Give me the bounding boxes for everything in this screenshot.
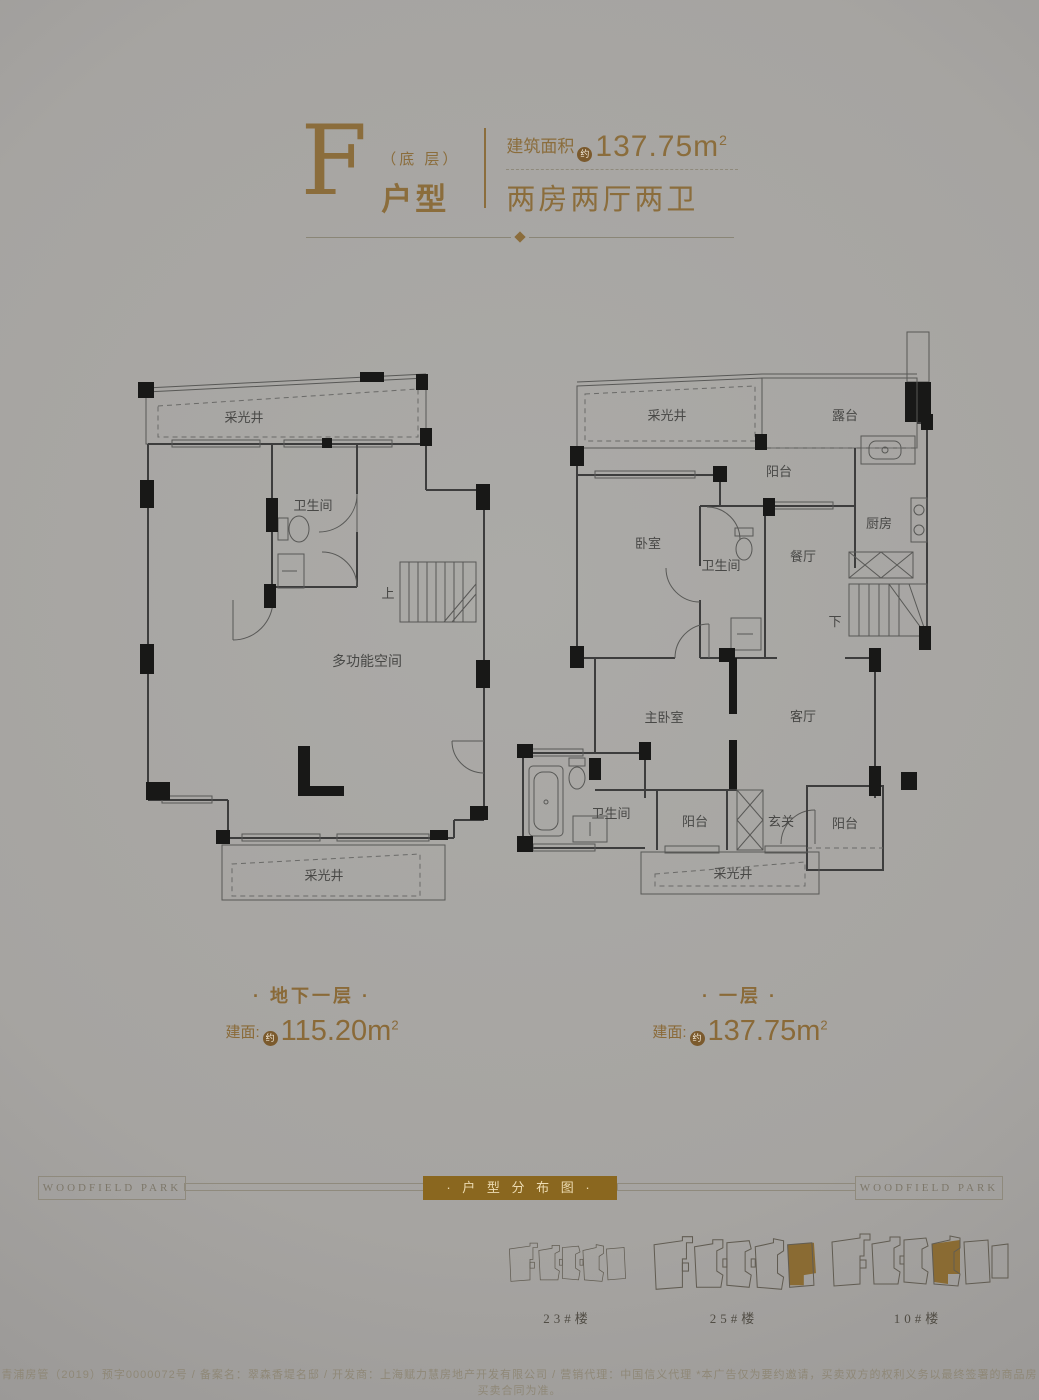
room-label-multi: 多功能空间 [332, 653, 402, 669]
header: F （底 层） 户型 建筑面积 约 137.75m2 两房两厅两卫 [0, 116, 1039, 219]
room-label-lightwell-bottom-f1: 采光井 [713, 866, 752, 881]
caption-basement-area-prefix: 建面: [225, 1021, 259, 1042]
banner-title: · 户 型 分 布 图 · [423, 1176, 617, 1200]
built-area-label: 建筑面积 [506, 132, 574, 157]
room-label-stairs-up: 上 [381, 586, 394, 601]
building-label-10: 10#楼 [826, 1308, 1010, 1327]
floorplan-first-floor: 采光井 露台 阳台 卧室 卫生间 餐厅 [515, 328, 935, 900]
layout-description: 两房两厅两卫 [506, 176, 738, 218]
built-area-sup: 2 [719, 132, 728, 148]
approx-badge: 约 [577, 147, 592, 162]
unit-type-label: 户型 [381, 174, 460, 219]
building-label-25: 25#楼 [648, 1308, 820, 1327]
banner-connector-left [184, 1183, 424, 1191]
approx-badge-basement: 约 [263, 1031, 278, 1046]
caption-basement-title: · 地下一层 · [132, 982, 492, 1008]
keyplan-building-23 [505, 1230, 630, 1296]
ornament-rule [306, 233, 734, 241]
floorplan-basement: 采光井 卫生间 [132, 362, 492, 907]
header-dashed-separator [506, 169, 738, 170]
highlighted-unit-10 [932, 1240, 960, 1284]
header-area-block: 建筑面积 约 137.75m2 两房两厅两卫 [506, 132, 738, 218]
caption-basement-area-sup: 2 [391, 1017, 398, 1032]
room-label-foyer: 玄关 [768, 814, 794, 829]
room-label-basement-bath: 卫生间 [293, 498, 332, 513]
approx-badge-first: 约 [690, 1031, 705, 1046]
legal-disclaimer: 青浦房管（2019）预字0000072号 / 备案名：翠森香堤名邸 / 开发商：… [0, 1366, 1039, 1398]
room-label-kitchen: 厨房 [866, 516, 892, 531]
keyplan-building-25 [648, 1228, 820, 1300]
unit-type-letter: F [301, 116, 368, 207]
unit-type-side: （底 层） 户型 [381, 116, 460, 219]
room-label-living: 客厅 [790, 709, 816, 724]
poster-page: F （底 层） 户型 建筑面积 约 137.75m2 两房两厅两卫 [0, 0, 1039, 1400]
caption-basement-area-number: 115.20m [281, 1015, 392, 1047]
diamond-ornament-icon [514, 231, 525, 242]
caption-first-floor: · 一层 · 建面: 约 137.75m2 [530, 982, 950, 1046]
room-label-balcony-b1: 阳台 [682, 814, 708, 829]
room-label-bath-mid: 卫生间 [701, 558, 740, 573]
room-label-bath-low: 卫生间 [591, 806, 630, 821]
brand-box-left: WOODFIELD PARK [38, 1176, 186, 1200]
caption-first-area-prefix: 建面: [652, 1021, 686, 1042]
caption-basement-area-value: 115.20m2 [281, 1017, 399, 1046]
room-label-master: 主卧室 [644, 710, 683, 725]
room-label-lightwell-top: 采光井 [224, 410, 263, 425]
caption-first-area-sup: 2 [820, 1017, 827, 1032]
caption-basement: · 地下一层 · 建面: 约 115.20m2 [132, 982, 492, 1046]
room-label-terrace: 露台 [832, 408, 858, 423]
keyplan-building-10 [826, 1226, 1010, 1302]
room-label-balcony-b2: 阳台 [832, 816, 858, 831]
room-label-lightwell-top-f1: 采光井 [647, 408, 686, 423]
room-label-lightwell-bottom: 采光井 [304, 868, 343, 883]
caption-first-area-value: 137.75m2 [708, 1017, 828, 1046]
built-area-number: 137.75m [595, 130, 719, 163]
brand-box-right: WOODFIELD PARK [855, 1176, 1003, 1200]
banner-connector-right [617, 1183, 856, 1191]
room-label-bedroom: 卧室 [635, 536, 661, 551]
room-label-stairs-down: 下 [828, 614, 841, 629]
floor-note: （底 层） [381, 148, 460, 169]
built-area-value: 137.75m2 [595, 132, 728, 162]
room-label-balcony-top: 阳台 [766, 464, 792, 479]
room-label-dining: 餐厅 [790, 549, 816, 564]
caption-first-title: · 一层 · [530, 982, 950, 1008]
caption-first-area-number: 137.75m [708, 1015, 821, 1047]
building-label-23: 23#楼 [505, 1308, 630, 1327]
header-divider [484, 128, 486, 208]
